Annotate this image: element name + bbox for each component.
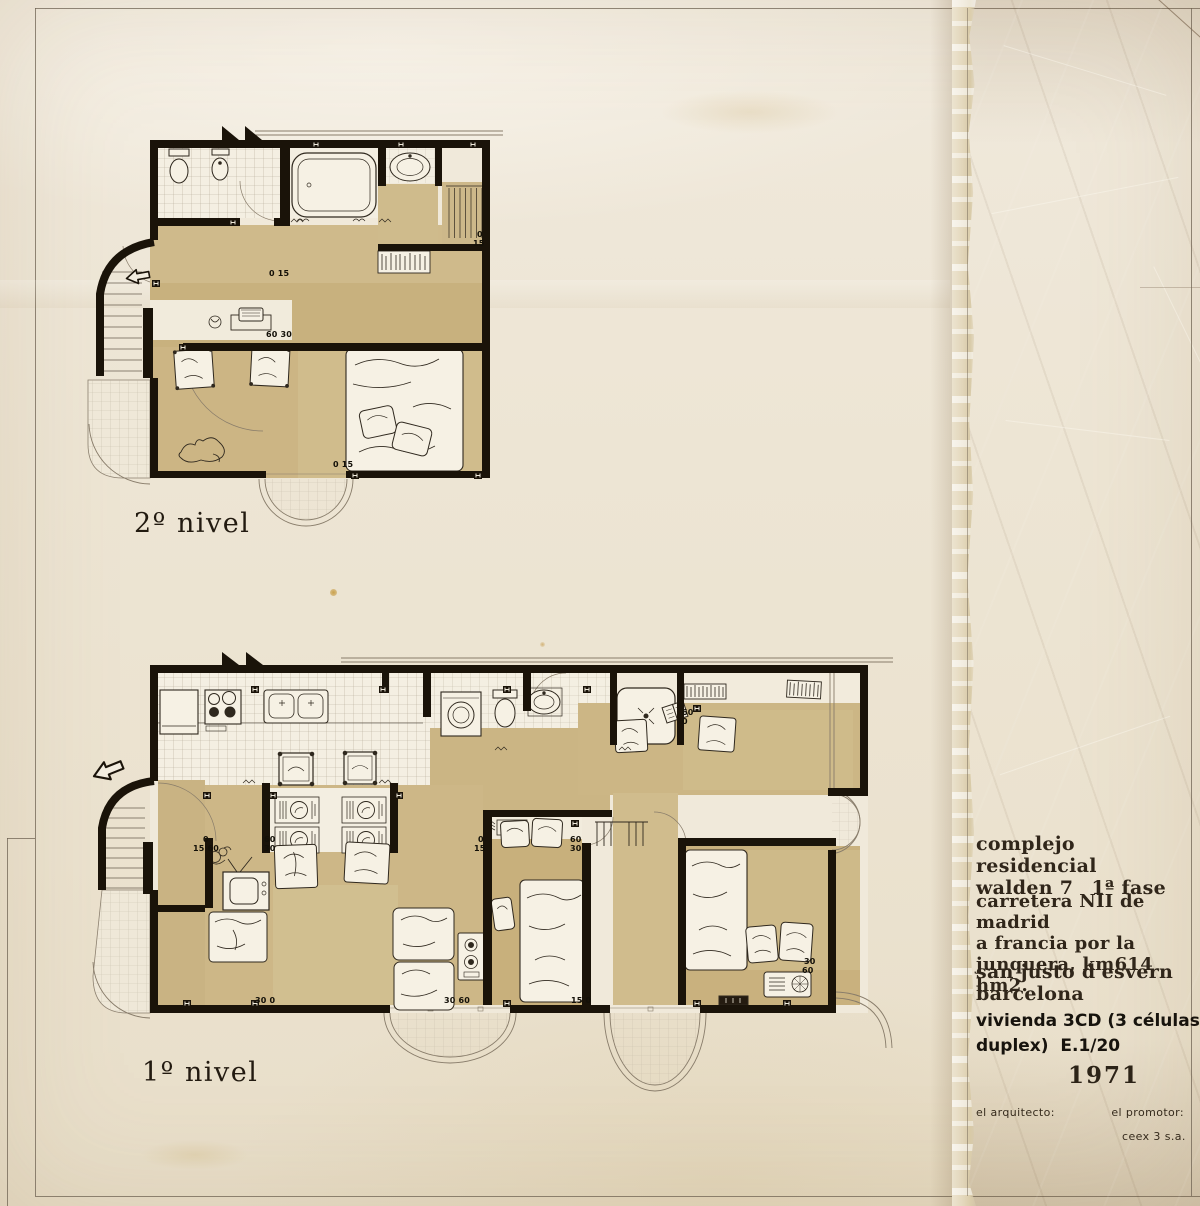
bookshelf	[684, 684, 726, 699]
bed	[520, 880, 584, 1002]
project-title-line1: complejo residencial	[976, 833, 1188, 877]
address-line2: a francia por la	[976, 933, 1188, 954]
dwelling-type: vivienda 3CD (3 células en duplex) E.1/2…	[976, 1009, 1188, 1059]
fridge	[160, 690, 198, 734]
floor-cushion	[614, 719, 648, 753]
credits-row: el arquitecto: el promotor:	[976, 1106, 1184, 1119]
washbasin	[390, 153, 430, 181]
floor-plan-upper	[83, 122, 505, 552]
frame-line-left	[35, 8, 36, 1196]
bathtub	[292, 153, 376, 221]
pillow	[531, 818, 562, 848]
entry-arrow-icon	[91, 756, 126, 784]
toilet	[169, 149, 189, 183]
floor-cushion	[698, 716, 736, 752]
location-line2: barcelona	[976, 983, 1188, 1005]
strip-shadow	[930, 0, 952, 1206]
pillow	[500, 820, 529, 847]
drawing-sheet: 2º nivel 1º nivel 0150 1560 300 15015 60…	[0, 0, 1200, 1206]
mattress	[393, 908, 454, 960]
strip-line-left	[967, 8, 968, 1196]
address-line1: carretera NII de madrid	[976, 891, 1188, 933]
mattress	[394, 962, 454, 1010]
location-line1: san justo d'esvern	[976, 961, 1188, 983]
shelf-unit	[719, 996, 748, 1005]
promoter-name: ceex 3 s.a.	[1122, 1130, 1200, 1143]
architect-label: el arquitecto:	[976, 1106, 1055, 1119]
low-table	[343, 751, 377, 785]
project-title: complejo residencial walden 7 1ª fase	[976, 833, 1188, 899]
floor-plan-lower	[83, 650, 893, 1125]
dwelling-line2: duplex) E.1/20	[976, 1034, 1188, 1059]
floor-cushion	[250, 347, 291, 388]
label-level-2: 2º nivel	[134, 508, 250, 539]
promoter-label: el promotor:	[1111, 1106, 1184, 1119]
year-label: 1971	[976, 1062, 1188, 1089]
floor-cushion	[274, 844, 317, 888]
toilet	[493, 690, 517, 727]
washing-machine	[441, 692, 481, 736]
balcony-tiles	[265, 479, 347, 520]
radio-cassette	[764, 972, 811, 997]
bed	[685, 850, 747, 970]
paper-stain	[330, 589, 337, 596]
double-bed	[346, 349, 463, 471]
frame-line-connector	[7, 838, 35, 839]
paper-stain	[660, 90, 840, 134]
floor-cushion	[173, 348, 214, 389]
dwelling-line1: vivienda 3CD (3 células en	[976, 1009, 1188, 1034]
pillow	[745, 925, 778, 963]
low-table	[278, 752, 314, 786]
stereo	[458, 933, 485, 980]
place-setting	[275, 797, 319, 823]
lower-stair-treads	[104, 808, 145, 888]
paper-stain	[540, 642, 545, 647]
bookshelf	[787, 680, 822, 699]
upper-stair-treads	[102, 272, 142, 371]
pillow	[779, 922, 814, 962]
frame-line-left-outer	[7, 838, 8, 1206]
bookshelf	[378, 251, 430, 273]
place-setting	[342, 797, 386, 823]
balcony-tiles	[390, 1013, 510, 1057]
torn-edge	[952, 0, 976, 1206]
bed	[209, 912, 267, 962]
floor-cushion	[344, 842, 390, 884]
pillow	[491, 897, 515, 931]
paper-stain	[140, 1140, 250, 1170]
kitchen-sinks	[264, 690, 328, 723]
label-level-1: 1º nivel	[142, 1057, 258, 1088]
project-location: san justo d'esvern barcelona	[976, 961, 1188, 1005]
bidet	[212, 149, 229, 180]
